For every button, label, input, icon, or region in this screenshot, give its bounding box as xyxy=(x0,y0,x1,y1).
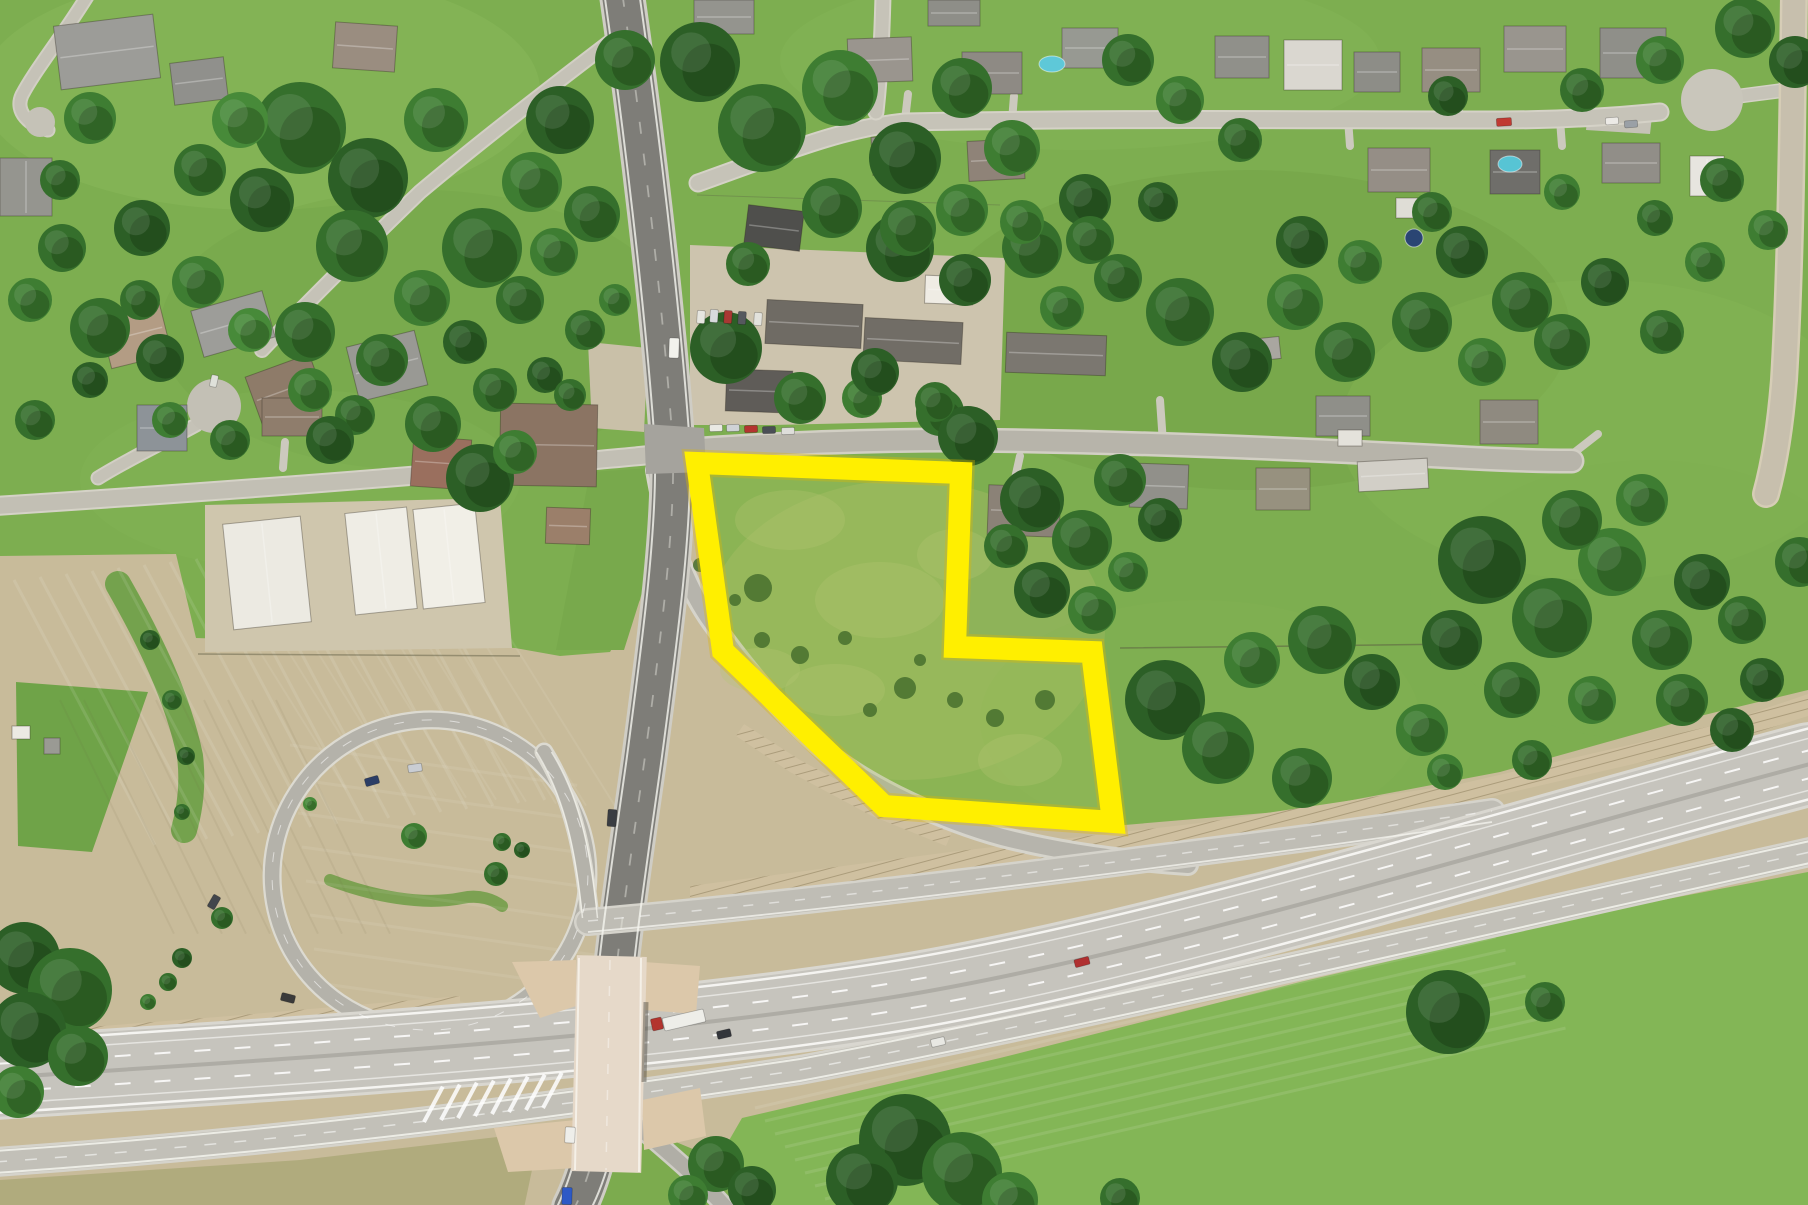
vehicle xyxy=(565,1127,576,1144)
bush xyxy=(1035,690,1055,710)
tree-highlight xyxy=(1716,714,1738,736)
tree-highlight xyxy=(56,1034,86,1064)
tree-highlight xyxy=(921,387,941,407)
tree-highlight xyxy=(175,951,185,961)
tree-highlight xyxy=(1280,756,1310,786)
tree-highlight xyxy=(78,306,108,336)
tree-highlight xyxy=(813,60,851,98)
building xyxy=(332,22,397,72)
tree-highlight xyxy=(516,844,524,852)
tree-highlight xyxy=(181,151,207,177)
tree-highlight xyxy=(732,248,754,270)
tree-highlight xyxy=(1418,981,1460,1023)
tree-highlight xyxy=(77,367,95,385)
tree-highlight xyxy=(165,693,175,703)
pool xyxy=(1498,156,1522,172)
tree-highlight xyxy=(1782,544,1807,569)
building xyxy=(1357,458,1428,492)
building xyxy=(928,0,980,26)
tree-highlight xyxy=(671,32,711,72)
tree-highlight xyxy=(603,288,619,304)
tree-highlight xyxy=(1754,215,1774,235)
vehicle xyxy=(754,312,763,326)
tree-highlight xyxy=(341,400,361,420)
tree-highlight xyxy=(1109,41,1135,67)
tree-highlight xyxy=(1550,498,1580,528)
vehicle xyxy=(1605,117,1618,125)
tree-highlight xyxy=(503,282,527,306)
tree-highlight xyxy=(413,403,441,431)
tree-highlight xyxy=(537,234,561,258)
tree-highlight xyxy=(1156,287,1190,321)
tree-highlight xyxy=(46,165,66,185)
tree-highlight xyxy=(143,633,153,643)
tree-highlight xyxy=(143,340,167,364)
tree-highlight xyxy=(940,66,970,96)
tree-highlight xyxy=(1009,476,1041,508)
vehicle xyxy=(762,426,775,433)
tree-highlight xyxy=(71,99,97,125)
tree-highlight xyxy=(1465,344,1489,368)
tree-highlight xyxy=(1746,664,1768,686)
tree-highlight xyxy=(1224,124,1246,146)
grass-mottle xyxy=(735,490,845,550)
tree-highlight xyxy=(1144,187,1164,207)
bush xyxy=(838,631,852,645)
tree-highlight xyxy=(479,374,501,396)
tree-highlight xyxy=(449,326,471,348)
tree-highlight xyxy=(413,96,445,128)
tree-highlight xyxy=(1073,222,1097,246)
tree-highlight xyxy=(1192,721,1228,757)
tree-highlight xyxy=(1232,639,1260,667)
tree-highlight xyxy=(1114,557,1134,577)
building-roof xyxy=(44,738,60,754)
driveway xyxy=(283,442,285,468)
tree-highlight xyxy=(1163,82,1187,106)
tree-highlight xyxy=(1640,618,1670,648)
building xyxy=(1354,52,1400,92)
tree-highlight xyxy=(1663,681,1689,707)
tree-highlight xyxy=(1642,205,1660,223)
tree-highlight xyxy=(294,374,316,396)
tree-highlight xyxy=(1432,759,1450,777)
tree-highlight xyxy=(405,826,418,839)
tree-highlight xyxy=(157,407,175,425)
tree-highlight xyxy=(496,835,505,844)
tree-highlight xyxy=(1443,233,1469,259)
tree-highlight xyxy=(326,219,362,255)
bush xyxy=(791,646,809,664)
building xyxy=(1368,148,1430,192)
tree-highlight xyxy=(858,354,882,378)
tree-highlight xyxy=(1046,292,1068,314)
tree-highlight xyxy=(1418,197,1438,217)
tree-highlight xyxy=(1400,300,1430,330)
tree-highlight xyxy=(674,1180,694,1200)
tree-highlight xyxy=(313,422,337,446)
building xyxy=(1504,26,1566,72)
tree-highlight xyxy=(879,131,915,167)
tree-highlight xyxy=(363,341,389,367)
tree-highlight xyxy=(943,191,969,217)
tree-highlight xyxy=(487,865,499,877)
tree-highlight xyxy=(946,261,972,287)
vehicle xyxy=(1496,117,1512,126)
tree-highlight xyxy=(283,310,313,340)
tree-highlight xyxy=(572,193,600,221)
tree-highlight xyxy=(40,959,82,1001)
tree-highlight xyxy=(1500,280,1530,310)
tree-highlight xyxy=(1575,682,1599,706)
tree-highlight xyxy=(1106,1183,1126,1203)
tree-highlight xyxy=(1075,592,1099,616)
tree-highlight xyxy=(267,94,313,140)
tree-highlight xyxy=(1643,42,1667,66)
tree-highlight xyxy=(45,230,69,254)
tree-highlight xyxy=(1706,164,1728,186)
building xyxy=(44,738,60,754)
vehicle xyxy=(709,424,722,431)
tree-highlight xyxy=(1101,260,1125,284)
tree-highlight xyxy=(1691,247,1711,267)
tree-highlight xyxy=(933,1142,973,1182)
tree-highlight xyxy=(1776,43,1802,69)
tree-highlight xyxy=(456,453,490,487)
building xyxy=(170,57,229,105)
building xyxy=(1256,468,1310,510)
vehicle xyxy=(669,338,680,358)
building xyxy=(53,14,160,90)
vehicle xyxy=(781,427,794,434)
tree-highlight xyxy=(1549,179,1567,197)
building xyxy=(12,726,30,739)
tree-highlight xyxy=(558,383,574,399)
building xyxy=(1602,143,1660,183)
pool xyxy=(1039,56,1065,72)
tree-highlight xyxy=(603,38,633,68)
tree-highlight xyxy=(1450,527,1494,571)
building xyxy=(1005,332,1106,375)
vehicle xyxy=(724,310,733,324)
tree-highlight xyxy=(179,263,205,289)
building-roof xyxy=(1338,430,1362,446)
building-roof xyxy=(12,726,30,739)
tree-highlight xyxy=(122,207,150,235)
tree-highlight xyxy=(1275,281,1303,309)
tree-highlight xyxy=(536,95,570,129)
tree-highlight xyxy=(730,95,774,139)
tree-highlight xyxy=(1531,987,1551,1007)
tree-highlight xyxy=(990,530,1012,552)
tree-highlight xyxy=(402,277,430,305)
bush xyxy=(729,594,741,606)
building xyxy=(1338,430,1362,446)
tree-highlight xyxy=(696,1143,724,1171)
tree-highlight xyxy=(1352,661,1380,689)
culdesac-bulb xyxy=(25,107,55,137)
tree-highlight xyxy=(220,99,248,127)
vehicle xyxy=(710,309,719,323)
bridge-approach-fan xyxy=(494,1120,576,1172)
pool xyxy=(1405,229,1423,247)
bush xyxy=(863,703,877,717)
tree-highlight xyxy=(14,284,36,306)
building xyxy=(545,507,590,545)
tree-highlight xyxy=(234,314,256,336)
tree-highlight xyxy=(499,436,521,458)
tree-highlight xyxy=(1682,561,1710,589)
grass-mottle xyxy=(815,562,945,638)
tree-highlight xyxy=(946,414,976,444)
tree-highlight xyxy=(1518,745,1538,765)
tree-highlight xyxy=(1430,618,1460,648)
tree-highlight xyxy=(1,1002,39,1040)
tree-highlight xyxy=(510,160,540,190)
tree-highlight xyxy=(339,148,379,188)
vehicle xyxy=(650,1017,663,1031)
bush xyxy=(754,632,770,648)
vehicle xyxy=(726,424,739,431)
vehicle xyxy=(562,1187,573,1204)
tree-highlight xyxy=(1006,206,1028,228)
tree-highlight xyxy=(1623,481,1649,507)
building xyxy=(1284,40,1342,90)
bridge-line xyxy=(644,1002,646,1082)
tree-highlight xyxy=(992,127,1020,155)
tree-highlight xyxy=(453,218,493,258)
building xyxy=(1215,36,1269,78)
tree-highlight xyxy=(1101,461,1127,487)
aerial-photo xyxy=(0,0,1808,1205)
vehicle xyxy=(738,311,747,325)
tree-highlight xyxy=(1136,670,1176,710)
tree-highlight xyxy=(1283,223,1309,249)
bush xyxy=(947,692,963,708)
bush xyxy=(744,574,772,602)
grass-mottle xyxy=(978,734,1062,786)
tree-highlight xyxy=(1523,588,1563,628)
tree-highlight xyxy=(21,405,41,425)
vehicle xyxy=(1624,120,1637,128)
tree-highlight xyxy=(0,1073,25,1099)
tree-highlight xyxy=(836,1153,872,1189)
tree-highlight xyxy=(1434,81,1454,101)
vehicle xyxy=(697,310,706,324)
tree-highlight xyxy=(810,186,840,216)
tree-highlight xyxy=(532,362,550,380)
tree-highlight xyxy=(1723,6,1753,36)
vehicle xyxy=(607,809,617,827)
building xyxy=(1480,400,1538,444)
bush xyxy=(914,654,926,666)
aerial-map-view xyxy=(0,0,1808,1205)
tree-highlight xyxy=(1022,569,1050,597)
bush xyxy=(986,709,1004,727)
tree-highlight xyxy=(1220,340,1250,370)
bush xyxy=(894,677,916,699)
tree-highlight xyxy=(1066,181,1092,207)
tree-highlight xyxy=(216,425,236,445)
tree-highlight xyxy=(1588,537,1622,571)
tree-highlight xyxy=(1344,246,1366,268)
tree-highlight xyxy=(126,285,146,305)
tree-highlight xyxy=(1646,316,1668,338)
tree-highlight xyxy=(888,207,916,235)
tree-highlight xyxy=(1060,518,1090,548)
vehicle xyxy=(744,425,757,432)
tree-highlight xyxy=(700,321,736,357)
tree-highlight xyxy=(735,1172,759,1196)
tree-highlight xyxy=(872,1106,918,1152)
tree-highlight xyxy=(781,379,807,405)
building xyxy=(345,507,417,615)
tree-highlight xyxy=(162,975,171,984)
vehicle xyxy=(408,763,423,773)
tree-highlight xyxy=(1298,615,1332,649)
culdesac-bulb xyxy=(1681,69,1743,131)
building xyxy=(765,300,863,349)
building xyxy=(223,516,312,630)
tree-highlight xyxy=(142,996,150,1004)
tree-highlight xyxy=(305,799,312,806)
tree-highlight xyxy=(180,749,189,758)
tree-highlight xyxy=(1542,321,1570,349)
tree-highlight xyxy=(571,315,591,335)
tree-highlight xyxy=(214,910,225,921)
tree-highlight xyxy=(1588,264,1612,288)
bridge-approach-fan xyxy=(644,962,700,1014)
tree-highlight xyxy=(1144,504,1166,526)
tree-highlight xyxy=(239,176,271,208)
tree-highlight xyxy=(1323,330,1353,360)
tree-highlight xyxy=(1403,711,1429,737)
tree-highlight xyxy=(176,806,184,814)
building xyxy=(413,503,485,609)
tree-highlight xyxy=(1566,74,1588,96)
tree-highlight xyxy=(1725,602,1749,626)
tree-highlight xyxy=(1492,669,1520,697)
